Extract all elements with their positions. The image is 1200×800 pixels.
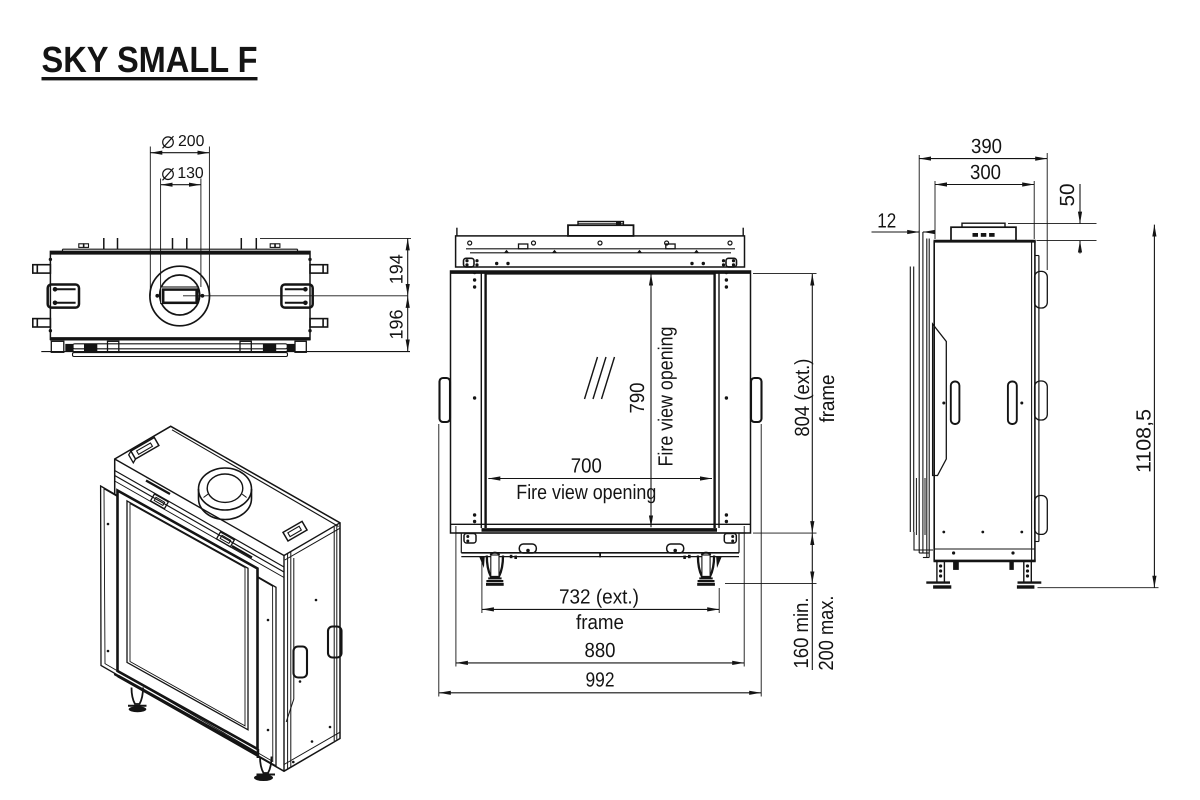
svg-text:frame: frame — [576, 611, 624, 634]
svg-text:790: 790 — [626, 383, 649, 414]
svg-text:130: 130 — [177, 165, 204, 182]
svg-text:804 (ext.): 804 (ext.) — [791, 359, 814, 437]
svg-text:194: 194 — [386, 254, 407, 284]
svg-text:200 max.: 200 max. — [815, 596, 838, 671]
svg-text:Fire view opening: Fire view opening — [654, 327, 677, 467]
svg-text:Fire view opening: Fire view opening — [516, 481, 656, 504]
svg-text:300: 300 — [970, 161, 1001, 184]
svg-text:700: 700 — [571, 455, 602, 478]
svg-text:200: 200 — [178, 133, 205, 150]
svg-text:50: 50 — [1056, 184, 1079, 207]
svg-text:frame: frame — [816, 375, 839, 423]
svg-text:SKY SMALL F: SKY SMALL F — [42, 39, 258, 80]
svg-text:880: 880 — [585, 639, 616, 662]
svg-text:1108,5: 1108,5 — [1132, 409, 1155, 473]
svg-text:992: 992 — [586, 669, 615, 692]
svg-text:160 min.: 160 min. — [790, 598, 813, 669]
svg-text:390: 390 — [971, 135, 1002, 158]
svg-text:196: 196 — [386, 310, 407, 340]
svg-text:732 (ext.): 732 (ext.) — [559, 586, 639, 609]
svg-text:12: 12 — [877, 210, 896, 233]
